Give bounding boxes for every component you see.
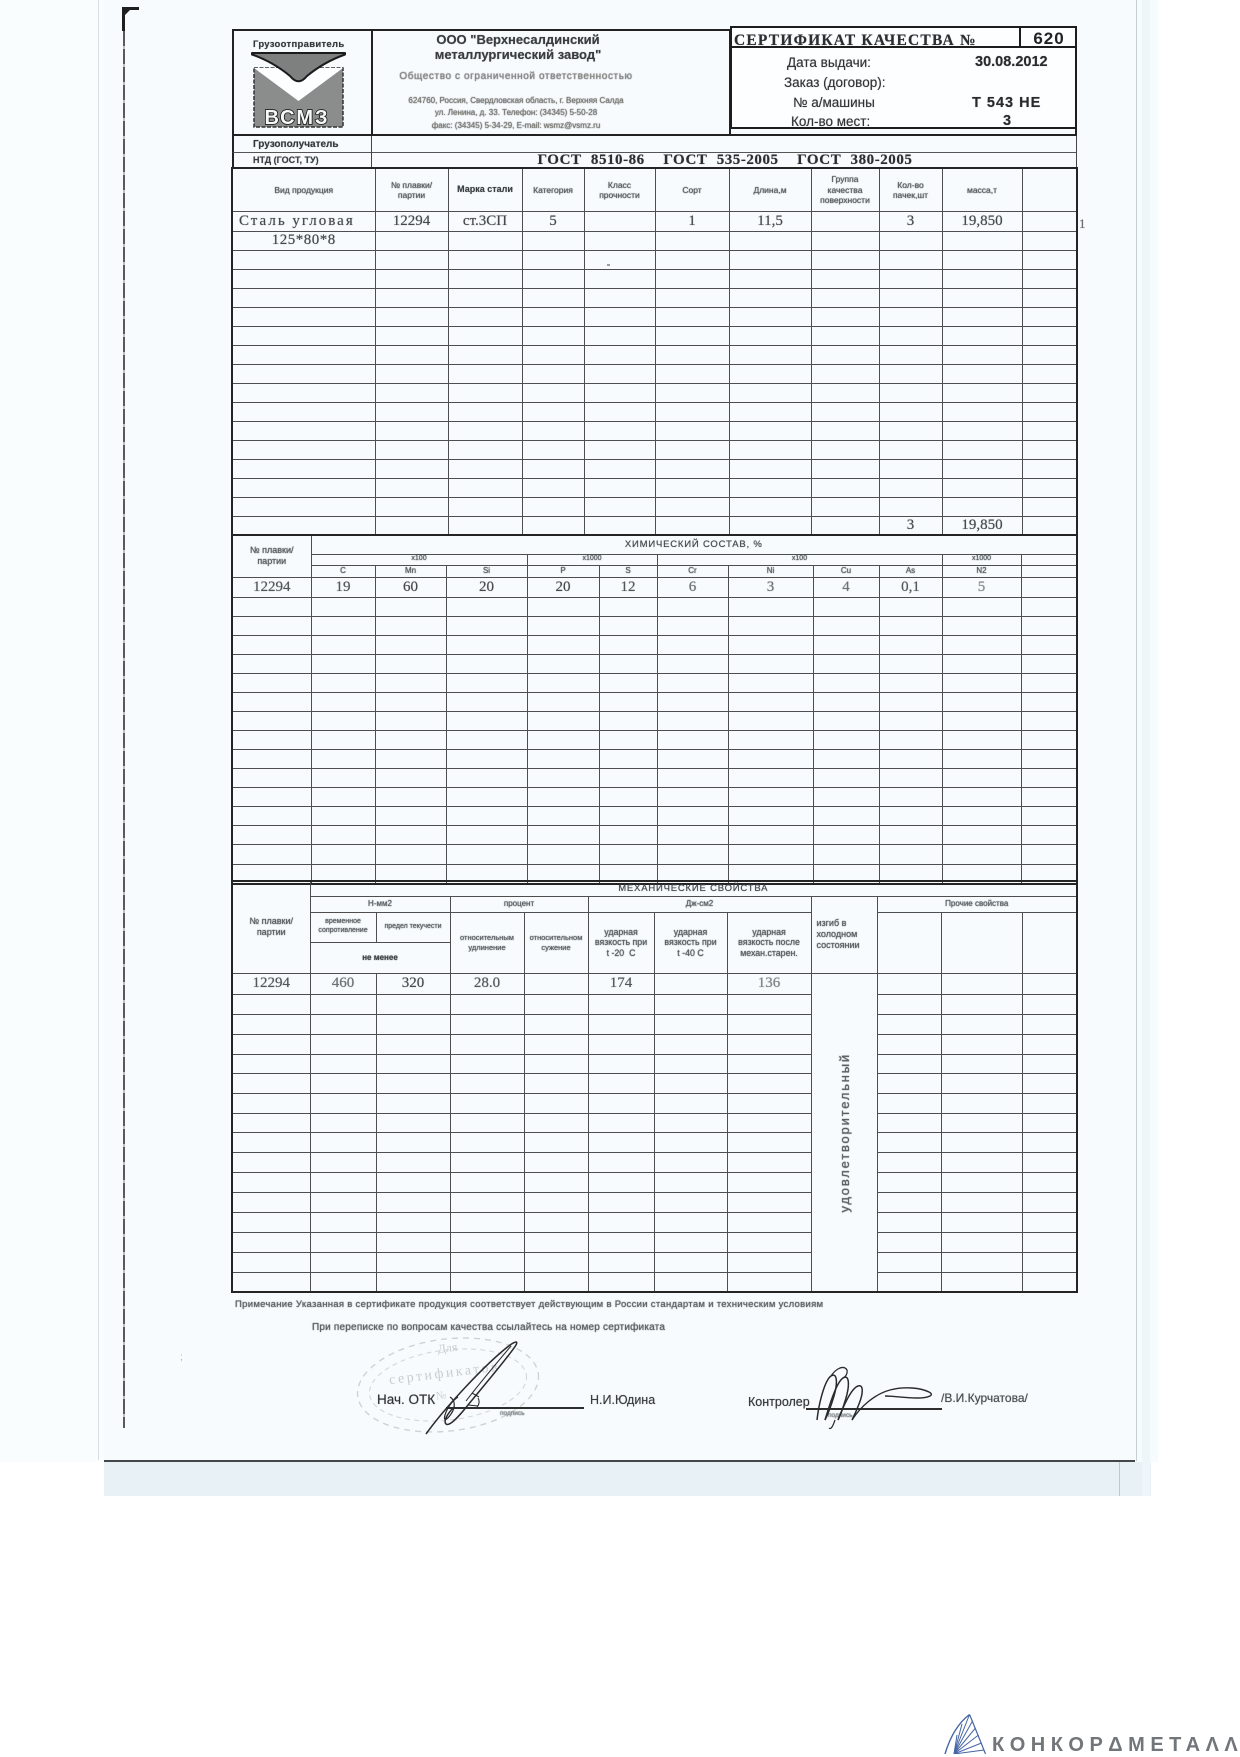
svg-text:ВСМЗ: ВСМЗ [264,107,329,129]
